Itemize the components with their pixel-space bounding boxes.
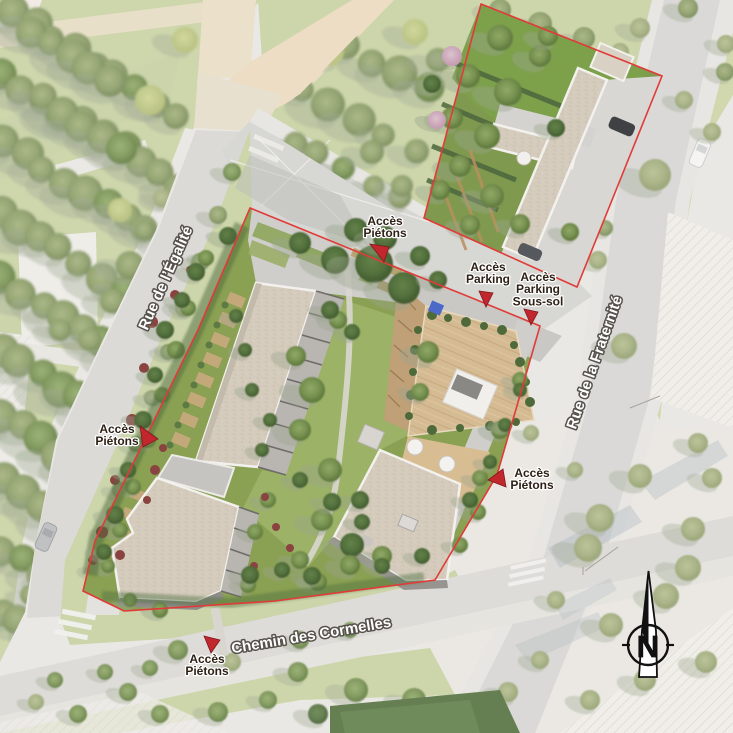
svg-text:Parking: Parking bbox=[466, 272, 510, 286]
svg-text:Piétons: Piétons bbox=[185, 664, 229, 678]
svg-text:N: N bbox=[637, 629, 659, 664]
svg-text:Sous-sol: Sous-sol bbox=[513, 294, 564, 308]
svg-text:Piétons: Piétons bbox=[95, 434, 139, 448]
svg-text:Piétons: Piétons bbox=[363, 226, 407, 240]
svg-text:Piétons: Piétons bbox=[510, 478, 554, 492]
